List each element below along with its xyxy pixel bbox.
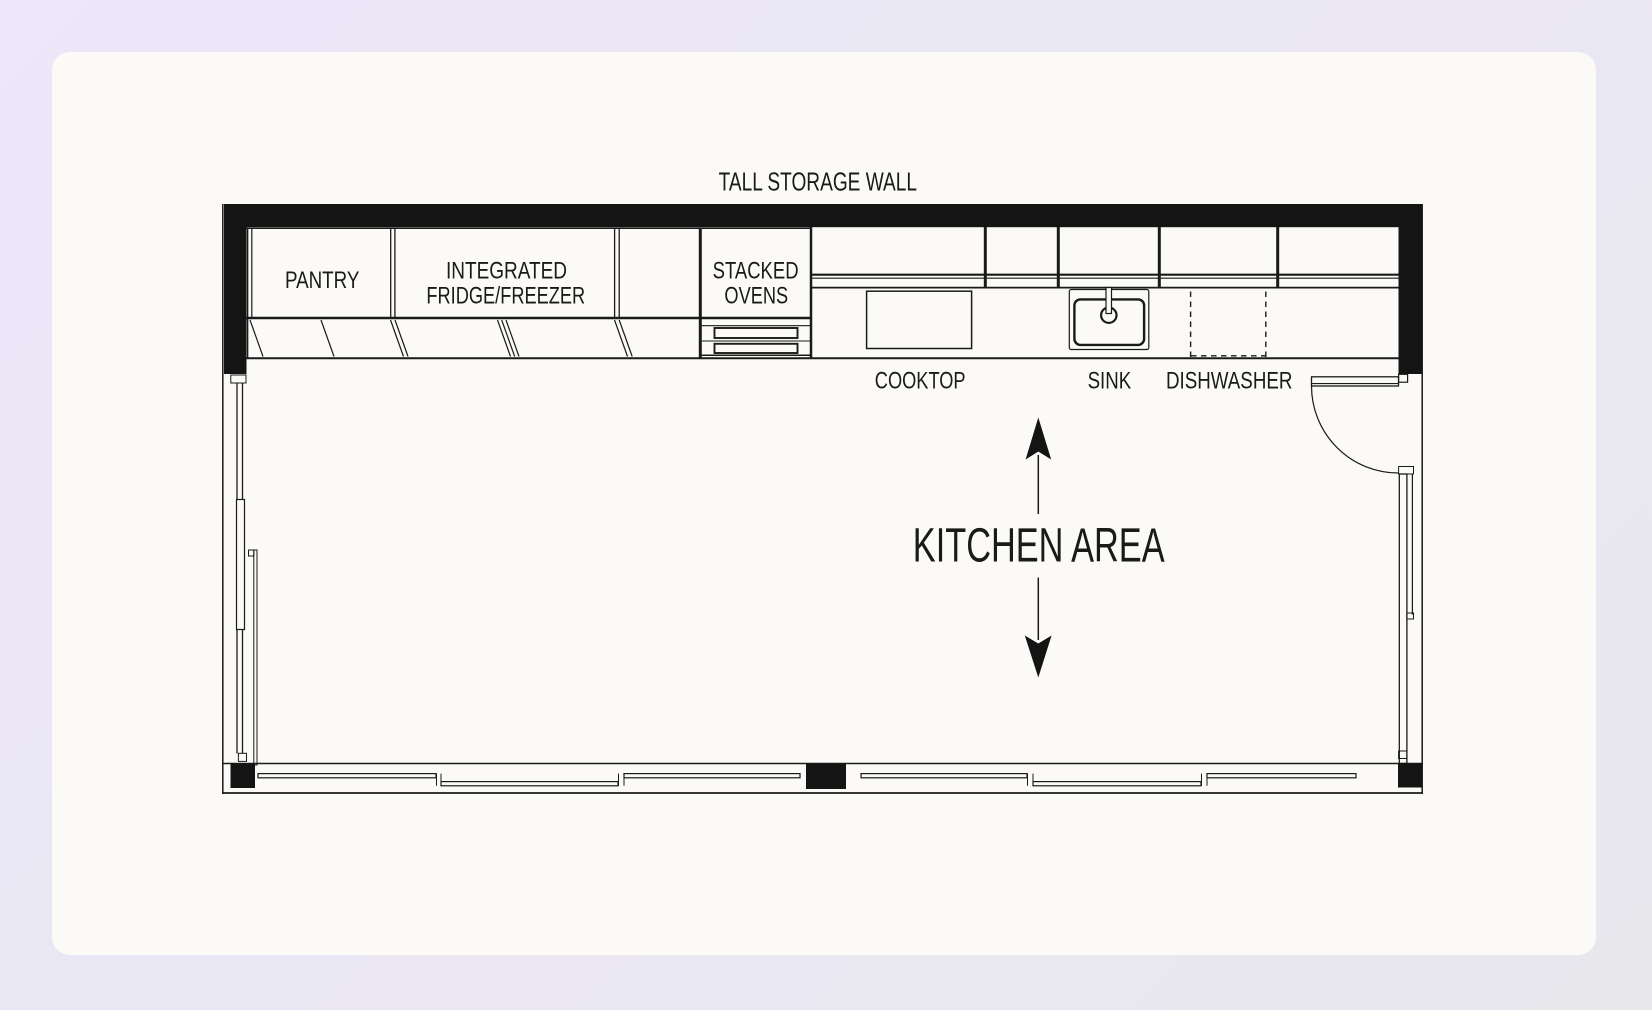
svg-text:KITCHEN AREA: KITCHEN AREA xyxy=(913,519,1165,573)
svg-text:COOKTOP: COOKTOP xyxy=(875,368,966,395)
svg-text:TALL STORAGE WALL: TALL STORAGE WALL xyxy=(719,167,917,197)
svg-text:OVENS: OVENS xyxy=(724,283,788,310)
svg-text:PANTRY: PANTRY xyxy=(285,267,360,294)
svg-text:FRIDGE/FREEZER: FRIDGE/FREEZER xyxy=(426,283,585,310)
svg-text:SINK: SINK xyxy=(1088,368,1132,395)
svg-text:DISHWASHER: DISHWASHER xyxy=(1166,368,1293,395)
svg-text:STACKED: STACKED xyxy=(713,258,799,285)
svg-text:INTEGRATED: INTEGRATED xyxy=(446,258,567,285)
